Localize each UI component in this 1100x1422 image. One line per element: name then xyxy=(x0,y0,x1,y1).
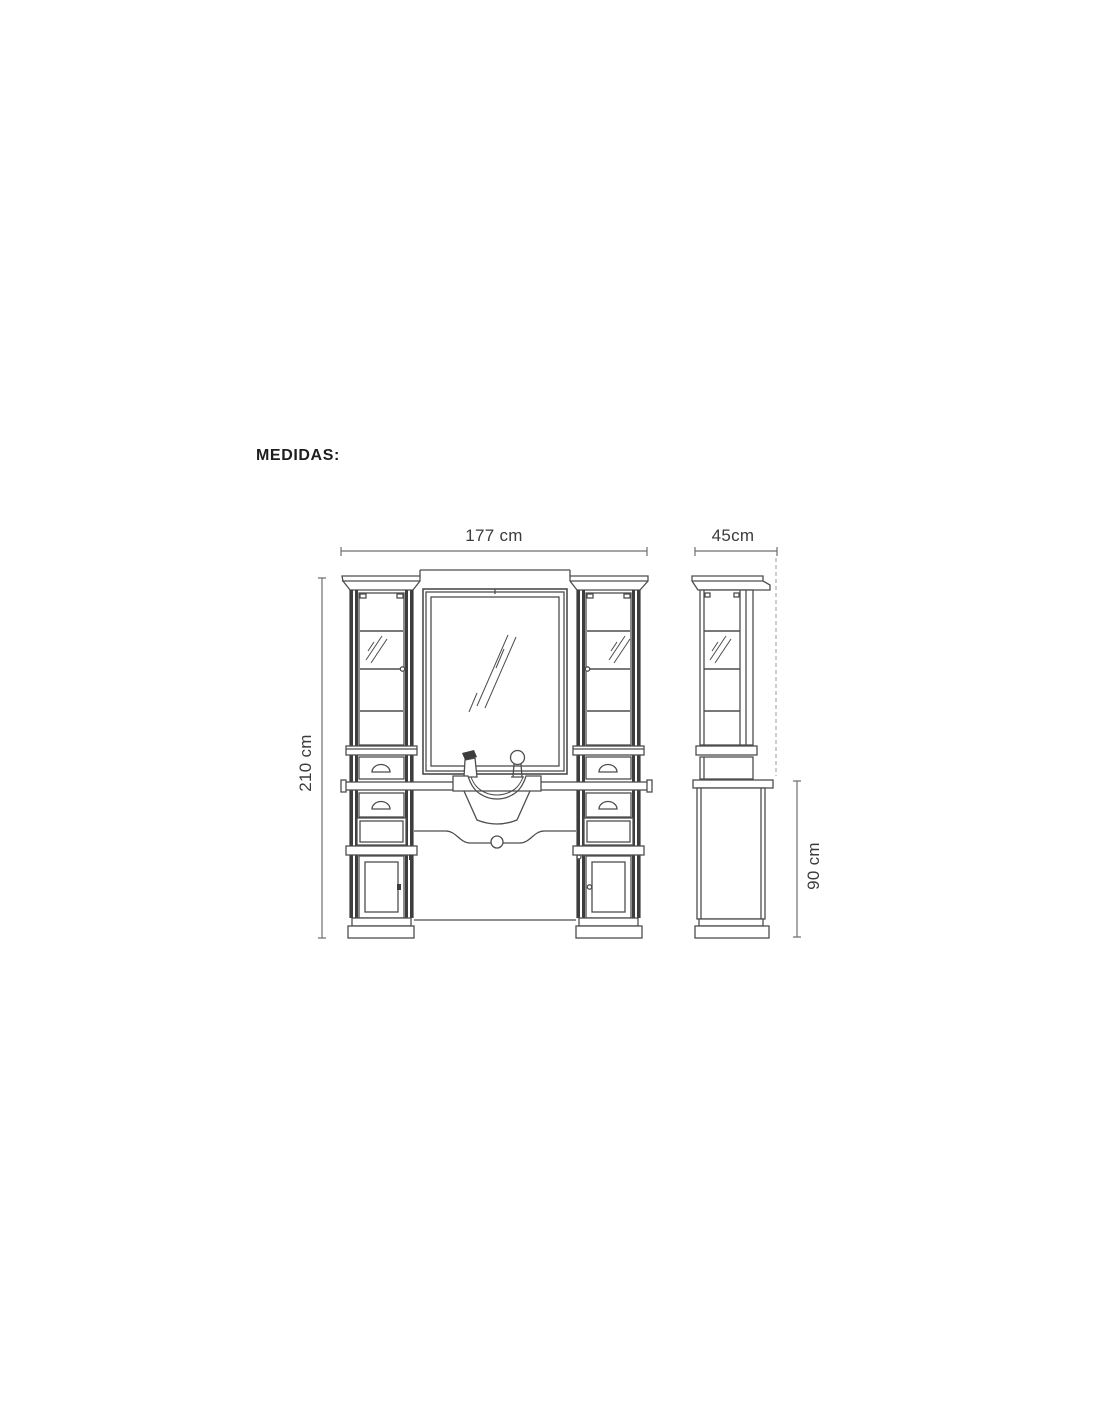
plinth-base xyxy=(576,918,642,938)
glass-display-door xyxy=(359,593,405,745)
cabinet-door xyxy=(359,856,404,918)
mirror xyxy=(423,589,567,774)
side-lower-cabinet xyxy=(693,780,773,938)
dimension-line-counter-height xyxy=(793,781,801,937)
cabinet-door xyxy=(586,856,631,918)
dimension-label-total-height: 210 cm xyxy=(297,718,315,808)
faucet xyxy=(462,750,477,777)
drawer xyxy=(359,793,404,817)
side-upper-cabinet xyxy=(692,576,770,779)
dimension-line-total-height xyxy=(318,578,326,938)
lower-back-panel xyxy=(414,831,576,920)
left-display-tower xyxy=(342,576,420,938)
technical-drawing xyxy=(0,0,1100,1422)
page: MEDIDAS: xyxy=(0,0,1100,1422)
right-display-tower xyxy=(570,576,648,938)
drawer xyxy=(586,757,631,779)
deep-drawer xyxy=(584,818,633,845)
deep-drawer xyxy=(357,818,406,845)
front-elevation-drawing xyxy=(341,570,652,938)
dimension-label-side-depth: 45cm xyxy=(688,527,778,545)
dimension-label-front-width: 177 cm xyxy=(449,527,539,545)
plinth-base xyxy=(348,918,414,938)
back-top-rail xyxy=(420,570,570,576)
dimension-line-front-width xyxy=(341,547,647,556)
glass-display-door xyxy=(585,593,631,745)
drawer xyxy=(586,793,631,817)
dimension-line-side-depth xyxy=(695,547,777,556)
drawer xyxy=(359,757,404,779)
side-elevation-drawing xyxy=(692,558,776,938)
washbasin xyxy=(453,776,541,824)
counter-bar xyxy=(341,780,652,792)
dimension-label-counter-height: 90 cm xyxy=(805,821,823,911)
